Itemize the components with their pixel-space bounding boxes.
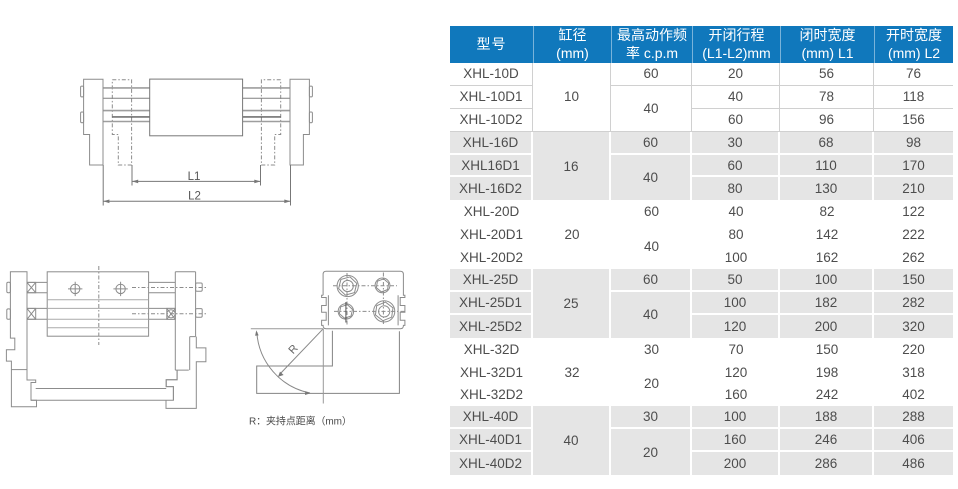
svg-text:L1: L1 [188, 171, 201, 183]
svg-text:L2: L2 [188, 191, 201, 203]
svg-text:R：夹持点距离（mm）: R：夹持点距离（mm） [249, 415, 352, 428]
